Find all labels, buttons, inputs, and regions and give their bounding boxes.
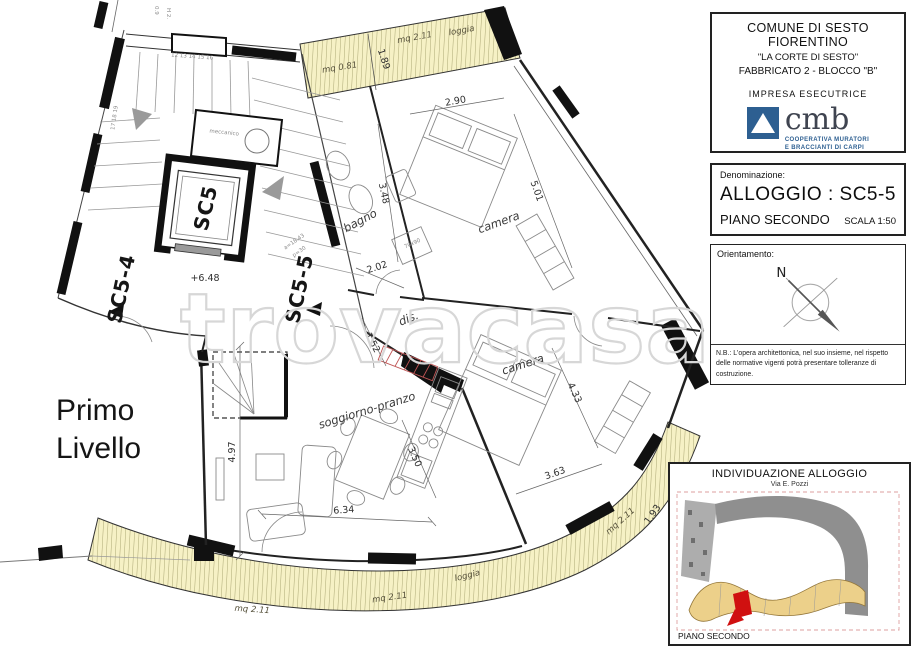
contractor-label: IMPRESA ESECUTRICE (712, 89, 904, 99)
room-camera-1: camera (476, 208, 522, 236)
cmb-sub-line1: COOPERATIVA MURATORI (785, 136, 869, 144)
room-soggiorno: soggiorno-pranzo (317, 389, 417, 432)
dim-5-01: 5.01 (528, 179, 546, 203)
project-name: "LA CORTE DI SESTO" (712, 52, 904, 63)
municipality: COMUNE DI SESTO FIORENTINO (712, 21, 904, 49)
level-label-line1: Primo (56, 392, 141, 430)
drawing-sheet: mq 0.81 1.89 mq 2.11 loggia mq 2.11 mq 2… (0, 0, 918, 652)
title-block: COMUNE DI SESTO FIORENTINO "LA CORTE DI … (710, 12, 906, 153)
orientation-block: Orientamento: N N.B.: L'opera architetto… (710, 244, 906, 385)
bottom-loggia: mq 2.11 mq 2.11 loggia mq 2.11 1.93 (88, 422, 700, 616)
adjacent-buildings (681, 500, 717, 582)
orientation-label: Orientamento: (717, 249, 899, 259)
building-name: FABBRICATO 2 - BLOCCO "B" (712, 66, 904, 77)
site-map (671, 490, 909, 637)
location-floor: PIANO SECONDO (678, 631, 750, 641)
dim-3-63: 3.63 (543, 465, 567, 482)
wardrobe (595, 381, 651, 454)
cmb-logo-icon (747, 107, 779, 139)
shower-size: 70x90 (403, 238, 422, 251)
window-note: H 2. (165, 8, 171, 19)
location-block: INDIVIDUAZIONE ALLOGGIO Via E. Pozzi PIA… (668, 462, 911, 646)
location-title: INDIVIDUAZIONE ALLOGGIO (670, 468, 909, 480)
stair-steps-top (136, 52, 250, 118)
level-label-line2: Livello (56, 430, 141, 468)
coffee-table (256, 454, 284, 480)
dim-2-90: 2.90 (444, 94, 467, 109)
apartment-id: ALLOGGIO : SC5-5 (720, 184, 896, 206)
bed (400, 105, 518, 227)
dim-6-34: 6.34 (333, 504, 355, 516)
stair-id-left: SC5-4 (102, 252, 140, 326)
contractor-logo: cmb COOPERATIVA MURATORI E BRACCIANTI DI… (712, 107, 904, 152)
top-loggia: mq 0.81 1.89 mq 2.11 loggia (300, 6, 522, 98)
denomination-label: Denominazione: (720, 170, 896, 180)
construction-note: N.B.: L'opera architettonica, nel suo in… (711, 344, 905, 384)
tv-cabinet (216, 458, 224, 500)
building-band (689, 580, 865, 622)
loggia-area-label: mq 2.11 (234, 604, 270, 616)
cmb-logo-text: cmb (785, 107, 869, 133)
sofa (298, 445, 337, 517)
level-label: Primo Livello (56, 392, 141, 467)
window-note: 0.9 (153, 6, 159, 15)
floor-name: PIANO SECONDO (720, 212, 830, 227)
cmb-sub-line2: E BRACCIANTI DI CARPI (785, 144, 869, 152)
scale-label: SCALA 1:50 (844, 216, 896, 227)
mech-room: meccanico (191, 110, 282, 166)
room-bagno: bagno (341, 206, 379, 235)
step-numbers: 17 18 19 (110, 105, 119, 131)
stair-direction-arrow (262, 176, 284, 200)
dim-4-97: 4.97 (227, 441, 238, 462)
watermark: trovacasa (180, 273, 710, 385)
street-name: Via E. Pozzi (670, 481, 909, 488)
elevator-shaft: SC5 (157, 157, 253, 266)
north-label: N (776, 266, 786, 281)
compass: N (769, 261, 847, 339)
denomination-block: Denominazione: ALLOGGIO : SC5-5 PIANO SE… (710, 163, 906, 236)
compass-needle (818, 310, 840, 332)
